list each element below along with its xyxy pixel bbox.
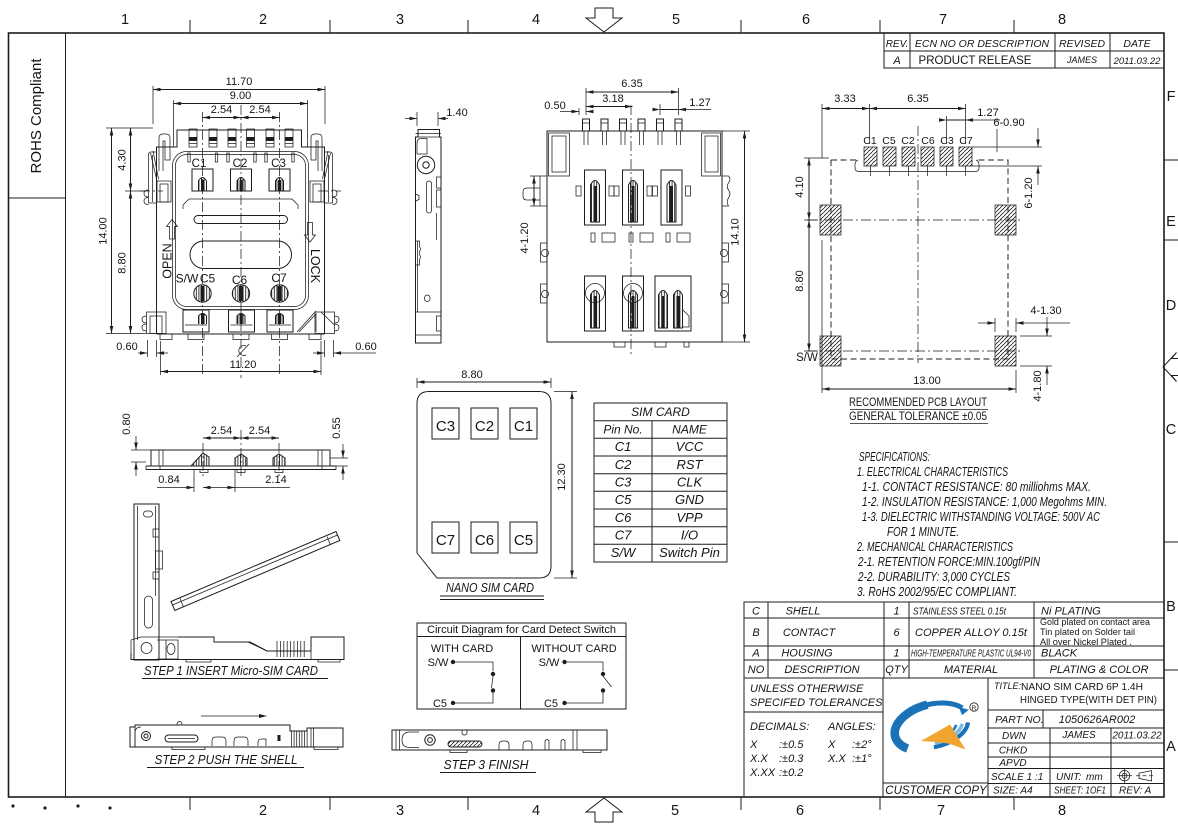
svg-text:6.35: 6.35: [621, 78, 642, 90]
svg-text:GENERAL TOLERANCE ±0.05: GENERAL TOLERANCE ±0.05: [849, 411, 987, 423]
svg-text:6-1.20: 6-1.20: [1023, 177, 1035, 208]
svg-text:Switch Pin: Switch Pin: [659, 545, 720, 560]
svg-text:0.80: 0.80: [121, 413, 133, 434]
svg-text:4-1.30: 4-1.30: [1030, 305, 1061, 317]
svg-text:4: 4: [532, 12, 540, 28]
svg-text:C5: C5: [882, 135, 896, 147]
svg-text:X.X: X.X: [749, 753, 768, 765]
svg-text:1.27: 1.27: [689, 97, 710, 109]
svg-text:12.30: 12.30: [556, 463, 568, 491]
svg-text:DWN: DWN: [1002, 731, 1027, 742]
svg-text:CUSTOMER COPY: CUSTOMER COPY: [885, 785, 988, 797]
svg-text:SHEET: 1OF1: SHEET: 1OF1: [1054, 786, 1106, 797]
svg-text:4.10: 4.10: [794, 176, 806, 197]
svg-text:GND: GND: [675, 492, 704, 507]
svg-text:1: 1: [893, 606, 899, 618]
svg-text:X: X: [749, 739, 758, 751]
svg-text:RST: RST: [677, 457, 704, 472]
svg-text:C5: C5: [514, 532, 533, 549]
svg-text:0.60: 0.60: [355, 341, 376, 353]
svg-text:1: 1: [893, 648, 899, 660]
svg-text:REV.: REV.: [886, 39, 909, 50]
svg-text:5: 5: [671, 803, 679, 819]
svg-text:2011.03.22: 2011.03.22: [1111, 731, 1162, 742]
svg-text:JAMES: JAMES: [1066, 55, 1097, 65]
svg-text:C1: C1: [192, 158, 207, 170]
svg-text:S/W: S/W: [796, 352, 818, 364]
svg-text:CONTACT: CONTACT: [783, 627, 837, 639]
svg-text:FOR 1 MINUTE.: FOR 1 MINUTE.: [887, 525, 959, 539]
svg-text:2: 2: [259, 12, 267, 28]
svg-text:ECN NO OR DESCRIPTION: ECN NO OR DESCRIPTION: [915, 38, 1050, 50]
svg-text:3.33: 3.33: [834, 93, 855, 105]
svg-text:C7: C7: [615, 528, 632, 543]
svg-text:HIGH-TEMPERATURE PLASTIC UL9: HIGH-TEMPERATURE PLASTIC UL94-V0: [911, 649, 1031, 660]
svg-text:RECOMMENDED PCB LAYOUT: RECOMMENDED PCB LAYOUT: [849, 397, 987, 409]
svg-text:C2: C2: [475, 418, 494, 435]
svg-text:3. RoHS 2002/95/EC COMPLIAN: 3. RoHS 2002/95/EC COMPLIANT.: [857, 585, 1017, 599]
svg-text:C2: C2: [233, 158, 248, 170]
svg-text:4: 4: [532, 803, 540, 819]
svg-text:C1: C1: [863, 135, 877, 147]
svg-text:2.54: 2.54: [249, 104, 270, 116]
svg-text:STEP 1 INSERT Micro-SIM CA: STEP 1 INSERT Micro-SIM CARD: [144, 664, 318, 678]
svg-text:Ni PLATING: Ni PLATING: [1041, 606, 1101, 618]
svg-text:2.14: 2.14: [265, 474, 286, 486]
svg-text:C6: C6: [475, 532, 494, 549]
svg-text:LOCK: LOCK: [308, 249, 322, 284]
svg-text:2.54: 2.54: [249, 425, 270, 437]
svg-text:4-1.20: 4-1.20: [519, 222, 531, 253]
svg-text:2.54: 2.54: [211, 425, 232, 437]
svg-text:6: 6: [893, 627, 900, 639]
svg-text:A: A: [751, 648, 759, 660]
svg-text:2. MECHANICAL CHARACTERISTIC: 2. MECHANICAL CHARACTERISTICS: [856, 540, 1013, 554]
svg-text:PLATING & COLOR: PLATING & COLOR: [1050, 664, 1149, 676]
svg-text::±2°: :±2°: [852, 739, 872, 751]
svg-text:C5: C5: [544, 698, 558, 710]
svg-text:C7: C7: [959, 135, 973, 147]
svg-text:1: 1: [121, 12, 129, 28]
svg-text:8: 8: [1058, 12, 1066, 28]
svg-text:STEP 3 FINISH: STEP 3 FINISH: [444, 758, 530, 772]
svg-text:2-1. RETENTION FORCE:MIN.100: 2-1. RETENTION FORCE:MIN.100gf/PIN: [857, 555, 1041, 569]
svg-text:Pin No.: Pin No.: [603, 423, 642, 437]
svg-text:NANO SIM CARD 6P 1.4H: NANO SIM CARD 6P 1.4H: [1021, 681, 1143, 693]
svg-text:2: 2: [259, 803, 267, 819]
svg-text:A: A: [1166, 739, 1176, 755]
svg-text:C: C: [752, 606, 760, 618]
svg-text:0.60: 0.60: [116, 341, 137, 353]
svg-text:APVD: APVD: [998, 758, 1026, 769]
svg-text:F: F: [1167, 89, 1176, 105]
svg-text:All over Nickel Plated .: All over Nickel Plated .: [1040, 637, 1132, 647]
svg-text:PART NO.: PART NO.: [995, 714, 1044, 726]
svg-text:UNIT:: UNIT:: [1056, 772, 1082, 783]
svg-text:BLACK: BLACK: [1041, 648, 1078, 660]
svg-text:9.00: 9.00: [230, 90, 251, 102]
svg-text:4.30: 4.30: [117, 149, 129, 170]
svg-text:2.54: 2.54: [211, 104, 232, 116]
svg-text:TITLE:: TITLE:: [994, 681, 1022, 691]
svg-text:OPEN: OPEN: [161, 243, 175, 278]
svg-text:E: E: [1166, 214, 1176, 230]
svg-text:S/W: S/W: [611, 545, 637, 560]
svg-text:SPECIFED TOLERANCES: SPECIFED TOLERANCES: [750, 697, 883, 709]
svg-text:JAMES: JAMES: [1061, 730, 1096, 741]
svg-text:SIM CARD: SIM CARD: [631, 405, 690, 419]
svg-text:C2: C2: [901, 135, 915, 147]
svg-text:HINGED TYPE(WITH DET PIN): HINGED TYPE(WITH DET PIN): [1020, 694, 1157, 706]
svg-text:ANGLES:: ANGLES:: [827, 721, 876, 733]
svg-text:VCC: VCC: [676, 439, 704, 454]
svg-text:3.18: 3.18: [602, 93, 623, 105]
svg-text:4-1.80: 4-1.80: [1032, 370, 1044, 401]
svg-text:VPP: VPP: [676, 510, 702, 525]
svg-text:X.X: X.X: [827, 753, 846, 765]
svg-text::±0.3: :±0.3: [779, 753, 804, 765]
svg-text:C3: C3: [271, 158, 286, 170]
svg-text::±0.5: :±0.5: [779, 739, 804, 751]
svg-text:11.70: 11.70: [226, 76, 253, 88]
svg-text:D: D: [1166, 298, 1176, 314]
svg-text:5: 5: [672, 12, 680, 28]
svg-text:S/W: S/W: [176, 272, 199, 286]
svg-text:C3: C3: [615, 475, 632, 490]
svg-text:WITH CARD: WITH CARD: [431, 643, 493, 655]
svg-text:X: X: [827, 739, 836, 751]
svg-text:S/W: S/W: [539, 657, 560, 669]
svg-text:C1: C1: [615, 439, 632, 454]
svg-text:6: 6: [796, 803, 804, 819]
svg-text::±1°: :±1°: [852, 753, 872, 765]
svg-text:8: 8: [1058, 803, 1066, 819]
svg-text:1-3. DIELECTRIC WITHSTANDING: 1-3. DIELECTRIC WITHSTANDING VOLTAGE: 50…: [862, 510, 1101, 524]
svg-text:3: 3: [396, 12, 404, 28]
svg-text:8.80: 8.80: [794, 270, 806, 291]
svg-text:8.80: 8.80: [117, 252, 129, 273]
svg-text:0.55: 0.55: [331, 417, 343, 438]
svg-text:COPPER ALLOY 0.15t: COPPER ALLOY 0.15t: [915, 627, 1028, 639]
svg-text:A: A: [892, 55, 900, 67]
svg-text:STEP 2 PUSH THE SHELL: STEP 2 PUSH THE SHELL: [155, 753, 298, 767]
svg-text::±0.2: :±0.2: [779, 767, 803, 779]
svg-text:STAINLESS STEEL 0.15t: STAINLESS STEEL 0.15t: [913, 607, 1007, 618]
svg-text:0.50: 0.50: [544, 100, 565, 112]
svg-text:0.84: 0.84: [158, 474, 179, 486]
svg-text:13.00: 13.00: [913, 375, 941, 387]
svg-text:8.80: 8.80: [461, 369, 482, 381]
svg-text:1. ELECTRICAL CHARACTERISTIC: 1. ELECTRICAL CHARACTERISTICS: [857, 465, 1008, 479]
svg-text:HOUSING: HOUSING: [781, 648, 833, 660]
svg-text:ROHS Compliant: ROHS Compliant: [28, 58, 45, 174]
svg-text:C5: C5: [433, 698, 447, 710]
svg-text:DECIMALS:: DECIMALS:: [750, 721, 809, 733]
svg-text:SHELL: SHELL: [786, 606, 821, 618]
svg-text:C3: C3: [436, 418, 455, 435]
svg-text:14.00: 14.00: [98, 217, 110, 245]
svg-text:C1: C1: [514, 418, 533, 435]
svg-text:REV: A: REV: A: [1119, 786, 1152, 797]
svg-text:Tin plated on Solder tail: Tin plated on Solder tail: [1040, 627, 1135, 637]
svg-text:R: R: [972, 705, 977, 712]
svg-text:MATERIAL: MATERIAL: [944, 664, 998, 676]
svg-text:DATE: DATE: [1123, 38, 1151, 50]
svg-text:WITHOUT CARD: WITHOUT CARD: [531, 643, 616, 655]
svg-text:B: B: [752, 627, 759, 639]
svg-text:7: 7: [939, 12, 947, 28]
svg-text:CHKD: CHKD: [999, 746, 1027, 757]
svg-text:C7: C7: [436, 532, 455, 549]
svg-text:mm: mm: [1086, 772, 1103, 783]
svg-text:6-0.90: 6-0.90: [993, 117, 1024, 129]
svg-text:X.XX: X.XX: [749, 767, 776, 779]
svg-text:C: C: [1166, 422, 1176, 438]
svg-text:QTY: QTY: [885, 664, 908, 676]
svg-text:SIZE: A4: SIZE: A4: [993, 786, 1033, 797]
svg-text:C6: C6: [921, 135, 935, 147]
svg-text:CLK: CLK: [677, 475, 704, 490]
svg-text:1050626AR002: 1050626AR002: [1059, 714, 1135, 726]
svg-text:DESCRIPTION: DESCRIPTION: [784, 664, 859, 676]
svg-text:I/O: I/O: [681, 528, 698, 543]
svg-text:NANO SIM CARD: NANO SIM CARD: [446, 581, 534, 595]
svg-text:S/W: S/W: [428, 657, 449, 669]
svg-text:NO: NO: [748, 664, 765, 676]
svg-text:B: B: [1166, 599, 1176, 615]
svg-text:NAME: NAME: [672, 423, 708, 437]
svg-text:UNLESS OTHERWISE: UNLESS OTHERWISE: [750, 683, 864, 695]
svg-text:C5: C5: [615, 492, 632, 507]
svg-text:7: 7: [937, 803, 945, 819]
svg-text:REVISED: REVISED: [1059, 38, 1106, 50]
svg-text:Gold plated on contact are: Gold plated on contact area: [1040, 617, 1150, 627]
svg-text:C2: C2: [615, 457, 632, 472]
svg-text:6: 6: [802, 12, 810, 28]
svg-text:SPECIFICATIONS:: SPECIFICATIONS:: [859, 450, 930, 464]
svg-text:14.10: 14.10: [730, 218, 742, 246]
svg-text:1-2. INSULATION RESISTANCE:: 1-2. INSULATION RESISTANCE: 1,000 Megohm…: [862, 495, 1107, 509]
svg-text:11.20: 11.20: [230, 359, 257, 371]
svg-text:1.40: 1.40: [446, 107, 467, 119]
svg-text:2011.03.22: 2011.03.22: [1113, 56, 1162, 67]
svg-text:SCALE 1 :1: SCALE 1 :1: [991, 772, 1043, 783]
svg-text:C6: C6: [615, 510, 632, 525]
svg-text:3: 3: [396, 803, 404, 819]
svg-text:PRODUCT RELEASE: PRODUCT RELEASE: [919, 55, 1032, 67]
svg-text:6.35: 6.35: [907, 93, 928, 105]
svg-text:2-2. DURABILITY: 3,000 CYCL: 2-2. DURABILITY: 3,000 CYCLES: [857, 570, 1010, 584]
svg-text:C3: C3: [940, 135, 954, 147]
svg-text:1-1. CONTACT RESISTANCE: 80: 1-1. CONTACT RESISTANCE: 80 milliohms MA…: [862, 480, 1091, 494]
svg-text:Circuit Diagram for Card D: Circuit Diagram for Card Detect Switch: [427, 624, 616, 636]
